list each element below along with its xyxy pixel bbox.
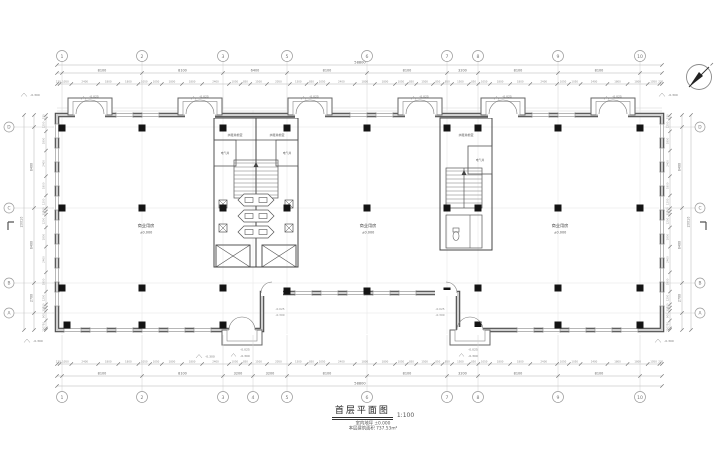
svg-text:1050: 1050: [62, 80, 69, 84]
svg-text:8400: 8400: [678, 241, 682, 249]
room-labels: 商业用房±0.000商业用房±0.000商业用房±0.000: [138, 222, 569, 235]
svg-text:1050: 1050: [560, 360, 567, 364]
svg-text:2050: 2050: [275, 80, 282, 84]
svg-text:1800: 1800: [634, 360, 641, 364]
svg-text:1800: 1800: [42, 182, 46, 189]
svg-text:1050: 1050: [481, 360, 488, 364]
svg-text:±0.000: ±0.000: [362, 231, 375, 235]
svg-text:1800: 1800: [382, 80, 389, 84]
svg-text:1800: 1800: [517, 360, 524, 364]
svg-text:8: 8: [477, 395, 480, 401]
svg-text:±0.000: ±0.000: [554, 231, 567, 235]
svg-text:850: 850: [409, 360, 414, 364]
svg-text:3200: 3200: [458, 69, 467, 73]
svg-text:-0.300: -0.300: [664, 339, 674, 343]
svg-text:300: 300: [42, 210, 46, 215]
svg-text:1200: 1200: [42, 198, 46, 205]
drawing-title-block: 首层平面图 1:100 室内地坪 ±0.000 本层建筑面积 737.53m²: [288, 403, 458, 437]
svg-text:1800: 1800: [189, 80, 196, 84]
svg-text:20010: 20010: [20, 217, 24, 228]
svg-text:3: 3: [222, 54, 225, 60]
svg-text:1200: 1200: [666, 121, 670, 128]
svg-text:-0.300: -0.300: [33, 339, 43, 343]
svg-text:2: 2: [141, 54, 144, 60]
svg-text:1: 1: [61, 395, 64, 401]
svg-text:850: 850: [435, 80, 440, 84]
elevation-marks: -0.300-0.300-0.300-0.300-0.300: [21, 93, 678, 359]
svg-text:1800: 1800: [105, 360, 112, 364]
svg-text:2400: 2400: [212, 360, 219, 364]
svg-text:1800: 1800: [634, 80, 641, 84]
svg-text:2050: 2050: [275, 360, 282, 364]
svg-text:6: 6: [366, 54, 369, 60]
svg-text:-0.300: -0.300: [668, 93, 678, 97]
svg-text:850: 850: [243, 80, 248, 84]
svg-text:4: 4: [252, 395, 255, 401]
svg-text:-0.300: -0.300: [435, 313, 444, 317]
svg-text:B: B: [7, 281, 10, 287]
svg-text:2400: 2400: [42, 256, 46, 263]
svg-text:2700: 2700: [678, 294, 682, 302]
svg-text:-0.300: -0.300: [205, 355, 215, 359]
svg-text:2400: 2400: [81, 360, 88, 364]
svg-text:8100: 8100: [403, 69, 412, 73]
svg-text:水暖井前室: 水暖井前室: [269, 132, 284, 137]
svg-text:8100: 8100: [178, 372, 187, 376]
svg-text:7: 7: [446, 395, 449, 401]
svg-text:1500: 1500: [457, 80, 464, 84]
svg-text:2400: 2400: [540, 80, 547, 84]
svg-text:1050: 1050: [153, 360, 160, 364]
svg-text:1800: 1800: [125, 80, 132, 84]
floor-plan-drawing: 水暖井前室水暖井前室电气井电气井水暖井前室电气井 -0.025-0.025-0.…: [0, 0, 718, 459]
svg-text:-0.025: -0.025: [435, 307, 444, 311]
svg-text:1800: 1800: [105, 80, 112, 84]
svg-text:750: 750: [42, 322, 46, 327]
svg-text:330: 330: [42, 114, 46, 119]
svg-text:9: 9: [557, 395, 560, 401]
svg-text:1800: 1800: [362, 80, 369, 84]
svg-text:-0.025: -0.025: [89, 95, 99, 99]
svg-text:8400: 8400: [30, 241, 34, 249]
svg-text:58800: 58800: [354, 382, 366, 386]
svg-text:1800: 1800: [42, 137, 46, 144]
svg-text:1050: 1050: [481, 80, 488, 84]
svg-text:-0.300: -0.300: [30, 93, 40, 97]
svg-text:C: C: [698, 206, 701, 212]
svg-text:B: B: [698, 281, 701, 287]
svg-text:3200: 3200: [234, 372, 243, 376]
svg-text:2400: 2400: [591, 360, 598, 364]
svg-text:A: A: [7, 311, 10, 317]
svg-text:商业用房: 商业用房: [360, 222, 377, 229]
svg-text:8100: 8100: [323, 372, 332, 376]
drawing-scale: 1:100: [397, 412, 414, 420]
svg-text:1: 1: [61, 54, 64, 60]
svg-text:5: 5: [286, 54, 289, 60]
svg-text:1800: 1800: [189, 360, 196, 364]
svg-text:2400: 2400: [338, 360, 345, 364]
svg-text:750: 750: [666, 322, 670, 327]
svg-text:1050: 1050: [62, 360, 69, 364]
svg-text:C: C: [7, 206, 10, 212]
svg-text:1800: 1800: [614, 360, 621, 364]
svg-text:1050: 1050: [571, 80, 578, 84]
svg-text:-0.025: -0.025: [419, 95, 429, 99]
svg-text:1800: 1800: [497, 80, 504, 84]
svg-text:1200: 1200: [666, 217, 670, 224]
svg-text:1200: 1200: [42, 217, 46, 224]
svg-text:1800: 1800: [125, 360, 132, 364]
svg-text:8400: 8400: [678, 163, 682, 171]
svg-text:1200: 1200: [42, 294, 46, 301]
svg-text:10: 10: [637, 395, 643, 401]
svg-text:电气井: 电气井: [476, 158, 485, 162]
svg-text:1050: 1050: [141, 80, 148, 84]
svg-text:1050: 1050: [571, 360, 578, 364]
svg-text:1050: 1050: [650, 80, 657, 84]
svg-text:3200: 3200: [266, 372, 275, 376]
svg-text:-0.025: -0.025: [502, 95, 512, 99]
svg-text:1050: 1050: [232, 360, 239, 364]
svg-text:1500: 1500: [295, 360, 302, 364]
svg-text:900: 900: [666, 313, 670, 318]
svg-text:电气井: 电气井: [283, 151, 292, 155]
svg-text:-0.300: -0.300: [275, 313, 284, 317]
svg-text:-0.300: -0.300: [240, 354, 250, 358]
svg-text:330: 330: [666, 114, 670, 119]
svg-text:1800: 1800: [382, 360, 389, 364]
svg-text:1200: 1200: [42, 121, 46, 128]
svg-text:1800: 1800: [517, 80, 524, 84]
svg-text:3: 3: [222, 395, 225, 401]
svg-text:1800: 1800: [42, 233, 46, 240]
svg-text:8100: 8100: [595, 69, 604, 73]
svg-text:1500: 1500: [457, 360, 464, 364]
svg-text:±0.000: ±0.000: [140, 231, 153, 235]
svg-text:-0.025: -0.025: [275, 307, 284, 311]
floor-plan-sheet: 水暖井前室水暖井前室电气井电气井水暖井前室电气井 -0.025-0.025-0.…: [0, 0, 718, 459]
svg-text:1050: 1050: [398, 80, 405, 84]
svg-text:1050: 1050: [398, 360, 405, 364]
svg-text:-0.300: -0.300: [468, 354, 478, 358]
svg-text:300: 300: [42, 306, 46, 311]
svg-text:8100: 8100: [514, 69, 523, 73]
svg-text:8400: 8400: [30, 163, 34, 171]
svg-text:1800: 1800: [666, 182, 670, 189]
svg-text:1800: 1800: [614, 80, 621, 84]
svg-text:8100: 8100: [595, 372, 604, 376]
svg-text:8: 8: [477, 54, 480, 60]
svg-text:1200: 1200: [666, 294, 670, 301]
svg-text:20010: 20010: [687, 217, 691, 228]
svg-text:300: 300: [666, 210, 670, 215]
stair-elevator-cores: 水暖井前室水暖井前室电气井电气井水暖井前室电气井: [214, 118, 492, 267]
svg-text:850: 850: [471, 360, 476, 364]
svg-text:1050: 1050: [319, 360, 326, 364]
svg-text:1500: 1500: [421, 80, 428, 84]
svg-text:850: 850: [445, 80, 450, 84]
svg-text:2400: 2400: [42, 160, 46, 167]
svg-text:水暖井前室: 水暖井前室: [458, 132, 473, 137]
svg-text:1800: 1800: [666, 233, 670, 240]
drawing-title: 首层平面图: [332, 403, 393, 420]
svg-text:8100: 8100: [178, 69, 187, 73]
svg-text:8100: 8100: [403, 372, 412, 376]
svg-text:3200: 3200: [458, 372, 467, 376]
svg-text:8100: 8100: [323, 69, 332, 73]
svg-text:电气井: 电气井: [221, 151, 230, 155]
svg-text:A: A: [698, 311, 701, 317]
svg-text:1050: 1050: [141, 360, 148, 364]
svg-text:8100: 8100: [514, 372, 523, 376]
svg-text:2400: 2400: [81, 80, 88, 84]
svg-text:5: 5: [286, 395, 289, 401]
svg-text:1500: 1500: [255, 80, 262, 84]
building-outline: [54, 108, 664, 333]
svg-text:2400: 2400: [666, 256, 670, 263]
svg-text:2400: 2400: [666, 160, 670, 167]
svg-text:850: 850: [309, 360, 314, 364]
svg-text:2700: 2700: [30, 294, 34, 302]
svg-text:9: 9: [557, 54, 560, 60]
svg-text:8100: 8100: [98, 372, 107, 376]
svg-text:850: 850: [445, 360, 450, 364]
svg-text:1050: 1050: [153, 80, 160, 84]
svg-text:-0.025: -0.025: [240, 348, 250, 352]
svg-text:2: 2: [141, 395, 144, 401]
north-arrow-icon: [683, 58, 717, 96]
svg-text:商业用房: 商业用房: [138, 222, 155, 229]
svg-text:850: 850: [309, 80, 314, 84]
svg-text:2400: 2400: [540, 360, 547, 364]
svg-text:商业用房: 商业用房: [552, 222, 569, 229]
svg-text:6400: 6400: [251, 69, 260, 73]
svg-text:1800: 1800: [42, 278, 46, 285]
svg-text:900: 900: [42, 313, 46, 318]
drawing-note-area: 本层建筑面积 737.53m²: [320, 426, 425, 431]
svg-text:1800: 1800: [362, 360, 369, 364]
svg-text:水暖井前室: 水暖井前室: [227, 132, 242, 137]
svg-text:1050: 1050: [319, 80, 326, 84]
svg-text:6: 6: [366, 395, 369, 401]
svg-text:-0.025: -0.025: [468, 348, 478, 352]
svg-text:7: 7: [446, 54, 449, 60]
svg-text:1050: 1050: [232, 80, 239, 84]
svg-text:-0.025: -0.025: [199, 95, 209, 99]
svg-text:2400: 2400: [591, 80, 598, 84]
svg-text:1800: 1800: [169, 360, 176, 364]
svg-text:1500: 1500: [295, 80, 302, 84]
svg-text:-0.025: -0.025: [612, 95, 622, 99]
svg-text:1050: 1050: [560, 80, 567, 84]
svg-text:850: 850: [435, 360, 440, 364]
svg-text:1800: 1800: [169, 80, 176, 84]
svg-text:2400: 2400: [212, 80, 219, 84]
svg-text:850: 850: [243, 360, 248, 364]
svg-text:1500: 1500: [255, 360, 262, 364]
svg-text:850: 850: [409, 80, 414, 84]
svg-text:8100: 8100: [98, 69, 107, 73]
svg-text:2400: 2400: [338, 80, 345, 84]
svg-text:10: 10: [637, 54, 643, 60]
svg-text:1800: 1800: [666, 137, 670, 144]
svg-text:1050: 1050: [650, 360, 657, 364]
svg-text:1800: 1800: [666, 278, 670, 285]
grid-lines: [52, 110, 667, 334]
svg-text:-0.025: -0.025: [309, 95, 319, 99]
svg-text:300: 300: [666, 306, 670, 311]
svg-text:1200: 1200: [666, 198, 670, 205]
svg-text:1800: 1800: [497, 360, 504, 364]
svg-text:1500: 1500: [421, 360, 428, 364]
svg-text:850: 850: [471, 80, 476, 84]
